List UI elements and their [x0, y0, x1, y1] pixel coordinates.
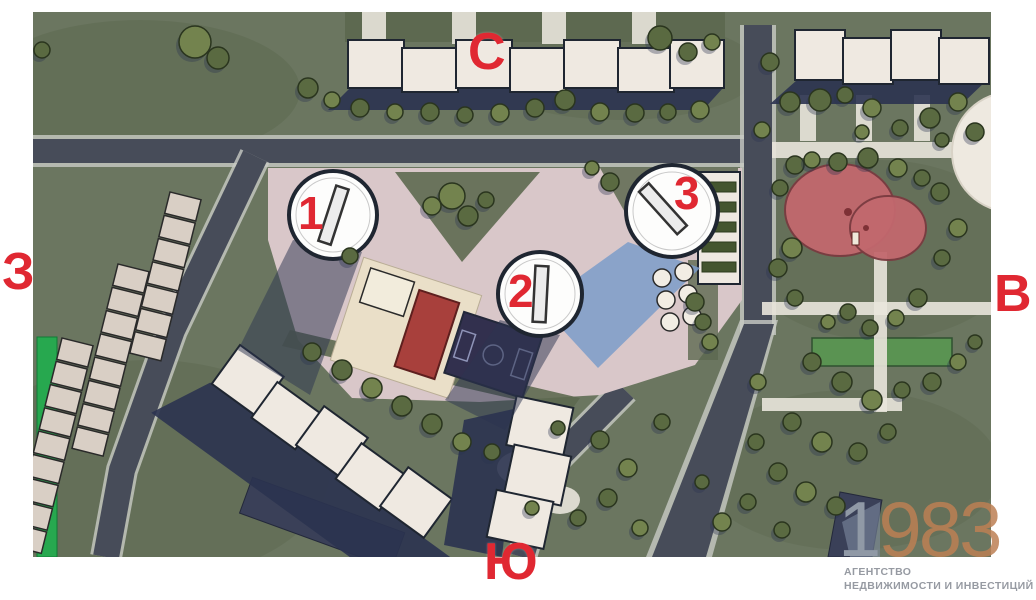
watermark-number: 1983: [838, 496, 1034, 562]
tower2-number-marker: 2: [508, 268, 534, 314]
site-plan-screenshot: С Ю З В 1 2 3 1983 АГЕНТСТВО НЕДВИЖИМОСТ…: [0, 0, 1036, 600]
compass-west-label: З: [2, 246, 35, 298]
watermark-logo: 1983 АГЕНТСТВО НЕДВИЖИМОСТИ И ИНВЕСТИЦИЙ: [838, 496, 1034, 594]
compass-north-label: С: [468, 26, 506, 78]
watermark-line2: НЕДВИЖИМОСТИ И ИНВЕСТИЦИЙ: [844, 580, 1034, 594]
compass-south-label: Ю: [484, 536, 538, 588]
tower-3: [626, 165, 718, 257]
tower1-number-marker: 1: [298, 190, 324, 236]
tower3-number-marker: 3: [674, 170, 700, 216]
compass-east-label: В: [994, 268, 1032, 320]
